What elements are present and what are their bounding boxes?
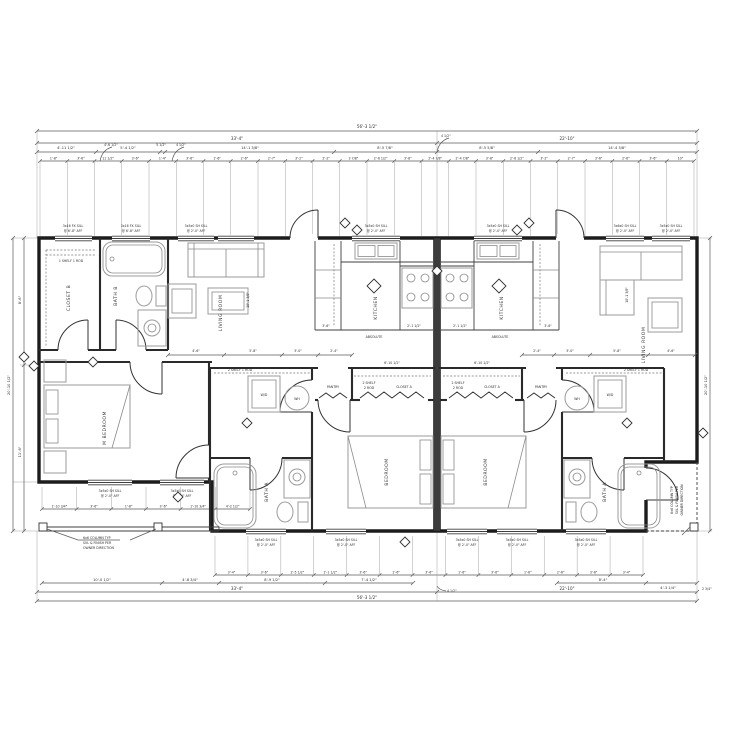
window [112,235,150,241]
room-label-closet-a-left: CLOSET A [396,385,412,389]
dim-left-a: 8'-6" [18,295,22,304]
dim-mid: 8'-9 1/2" [264,578,280,582]
dim-top-left: 33'-4" [231,136,243,141]
front-door-opening-right [556,234,584,242]
nightstand [44,360,66,382]
sink [144,320,160,336]
dim-living-left: 10'-1 3/8" [246,292,250,308]
tub-drain [233,471,237,475]
dim-label: 3'-6" [649,156,657,160]
room-label-kitchen-left: KITCHEN [373,296,379,319]
dim-label: 4'-2 1/2" [226,504,240,508]
dim-bottom-overall: 56'-3 1/2" [357,595,377,600]
dim-label: 1'-6" [392,570,400,574]
window [474,235,522,241]
sill-label: 3x6x0 SH SILL [614,224,637,228]
bedroom-left: BEDROOM [348,436,433,508]
dim-label: 3'-2" [295,156,303,160]
dim-label: 2'-2" [322,156,330,160]
room-label-bath-a-left: BATH A [264,482,270,502]
toilet-bowl [136,286,152,306]
dim-hall: 4'-6" [667,349,675,353]
dim-label: 3'-6" [186,156,194,160]
dim-label: 3'-2" [540,156,548,160]
sill-label: 3x5x0 SH SILL [185,224,208,228]
nightstand [44,451,66,473]
sill-label: @ 6'-8" AFF [64,229,83,233]
room-label-bedroom-left: BEDROOM [384,458,390,485]
dim-mid: 7'-4 1/2" [361,578,377,582]
closet-note: 2 SHELF [362,381,375,385]
dim-label: 3'-6" [425,570,433,574]
sill-label: @ 2'-0" AFF [337,543,356,547]
bifold-closet-a-left [360,392,424,398]
window [218,235,254,241]
dim-label: 2'-4 7/8" [456,156,470,160]
toilet-bowl [277,502,293,522]
dim-kitchen: 2'-1 1/2" [407,324,421,328]
dim-kitchen: 2'-1 1/2" [453,324,467,328]
dim-label: 1'-1 1/2" [323,570,337,574]
room-label-master-bedroom: M BEDROOM [102,411,108,445]
bed [44,385,130,448]
pillow [420,440,431,470]
dim-seg: 14'-1 3/8" [241,146,259,150]
room-label-pantry-left: PANTRY [327,385,339,389]
porch-column [690,523,698,531]
column-note: SVL & FINISH PER [83,541,112,545]
dim-hall: 2'-4" [330,349,338,353]
dim-label: 3'-6" [90,504,98,508]
vanity [564,460,590,498]
sill-label: @ 6'-8" AFF [122,229,141,233]
coffee-table [648,298,682,332]
kitchen-right: KITCHEN 2'-1 1/2" 3'-6" ABSOLUTE [441,241,559,339]
master-bedroom-door [130,362,162,394]
dim-label: 3'-6" [491,570,499,574]
sill-label: @ 2'-0" AFF [101,494,120,498]
water-heater-label: WH [294,397,300,401]
dim-hall: 5'-8" [249,349,257,353]
bifold-closet-a-right [449,392,513,398]
window [246,528,286,534]
window [606,235,644,241]
dim-label: 3'-6" [77,156,85,160]
sill-label: @ 2'-0" AFF [616,229,635,233]
bath-b: BATH B [103,242,166,346]
pillow [46,390,58,414]
sill-label: 3x5x0 SH SILL [255,538,278,542]
room-label-bath-a-right: BATH A [602,482,608,502]
floor-plan-sheet: 56'-3 1/2" 33'-4" 22'-10" 4'-11 1/2" 5'-… [0,0,733,733]
dim-bottom-left: 33'-4" [231,586,243,591]
bifold-pantry-right [527,393,555,398]
room-label-living-right: LIVING ROOM [641,327,647,364]
dim-hall: 2'-4" [533,349,541,353]
room-label-kitchen-right: KITCHEN [499,296,505,319]
floor-plan-drawing: 56'-3 1/2" 33'-4" 22'-10" 4'-11 1/2" 5'-… [0,0,733,733]
closet-note: 1 SHELF 1 ROD [59,259,84,263]
dim-kitchen: 3'-6" [322,324,330,328]
sill-label: 3x5x0 SH SILL [660,224,683,228]
kitchen-note: ABSOLUTE [366,335,383,339]
dim-label: 1'-10 3/4" [51,504,67,508]
door-tag-diamond [340,218,350,228]
dim-hall: 3'-0" [566,349,574,353]
porch-left: 6x6 COLUMN TYP SVL & FINISH PER OWNER DI… [39,523,219,550]
porch-column [39,523,47,531]
room-label-closet-b: CLOSET B [66,285,72,311]
washer-dryer-label: W/D [261,393,268,397]
dim-left-total: 20'-10 1/2" [7,375,11,395]
dim-seg: 4'-11 1/2" [57,146,75,150]
window-tag-diamond [400,537,410,547]
toilet-bowl [581,502,597,522]
dim-top-overall: 56'-3 1/2" [357,124,377,129]
range [402,268,433,308]
dim-label: 2'-6 1/2" [510,156,524,160]
dim-label: 3'-6" [261,570,269,574]
master-bedroom: M BEDROOM [44,360,130,473]
room-label-living-left: LIVING ROOM [218,295,224,332]
closet-note: 2 SHELF [451,381,464,385]
bedroom-left-door [318,400,350,432]
sill-label: 3x5x0 SH SILL [335,538,358,542]
porch-column [154,523,162,531]
window [566,528,606,534]
column-note: 6x6 COLUMN TYP [83,536,111,540]
hall-door [176,445,209,478]
dim-seg: 5 1/2" [156,143,166,147]
sill-label: @ 2'-0" AFF [367,229,386,233]
vanity [284,460,310,498]
dim-label: 1'-6" [213,156,221,160]
sill-label: 3x16 FX SILL [121,224,142,228]
closet-a-right: 2 SHELF 2 ROD CLOSET A 6'-10 1/2" [443,361,520,390]
closet-note: 2 SHELF 1 ROD [228,368,253,372]
sill-label: @ 2'-0" AFF [257,543,276,547]
dim-label: 3'-6" [132,156,140,160]
door-tag-diamond [512,225,522,235]
window [652,235,690,241]
window [352,235,400,241]
water-heater-label: WH [574,397,580,401]
bath-a-right-door [592,458,624,490]
dim-label: 2'-6" [557,570,565,574]
party-wall [434,238,441,531]
sill-label: 3x5x0 SH SILL [99,489,122,493]
porch-right: 6x6 COLUMN TYP SVL & FINISH PER OWNER DI… [646,462,698,535]
sill-label: 3x5x0 SH SILL [456,538,479,542]
dim-mid: 8'-4" [599,578,608,582]
tub-drain [110,257,114,261]
sill-label: 3x5x0 SH SILL [575,538,598,542]
closet-note: 2 ROD [453,386,464,390]
toilet-tank [298,502,308,522]
dim-callout-bottom: 4 1/2" [447,589,457,593]
closet-note: 2 SHELF 1 ROD [624,368,649,372]
sink [289,469,305,485]
dim-label: 2'-5 1/2" [290,570,304,574]
dim-bottom-right: 22'-10" [560,586,575,591]
dim-row-bottom-left: 1'-10 3/4"3'-6"1'-8"3'-6"1'-10 3/4"4'-2 … [40,487,252,511]
toilet-tank [156,286,166,306]
dim-callout: 4'-6 1/2" [104,143,118,147]
room-label-pantry-right: PANTRY [535,385,547,389]
door-tag-diamond [242,418,252,428]
interior-walls [39,238,664,531]
sill-label: 3x5x0 SH SILL [487,224,510,228]
closet-a-left: 2 SHELF 2 ROD CLOSET A 6'-10 1/2" [354,361,431,390]
living-room-left: LIVING ROOM 10'-1 3/8" [168,243,264,331]
sill-label: @ 2'-0" AFF [458,543,477,547]
column-note: SVL & FINISH PER [675,485,679,514]
dim-hall: 4'-6" [192,349,200,353]
front-door-opening-left [290,234,318,242]
utility-right: 2 SHELF 1 ROD W/D WH [565,368,662,412]
vanity [138,310,166,346]
dim-mid: 10'-0 1/2" [93,578,111,582]
window [447,528,487,534]
dim-label: 3'-8" [404,156,412,160]
dim-label: 3 7/8" [349,156,359,160]
dim-label: 1'-10 3/4" [190,504,206,508]
dim-label: 3'-6" [359,570,367,574]
sill-label: @ 2'-0" AFF [508,543,527,547]
dim-seg: 8'-5 5/8" [479,146,495,150]
closet-note: 2 ROD [364,386,375,390]
toilet-tank [566,502,576,522]
bedroom-right: BEDROOM [441,436,526,508]
sill-label: 3x5x0 SH SILL [506,538,529,542]
dim-label: 10" [678,156,684,160]
dim-living-right: 10'-1 3/8" [625,287,629,303]
sill-label: 3x5x0 SH SILL [365,224,388,228]
entry-door-opening-right [642,468,650,500]
bifold-pantry-left [319,393,347,398]
door-tag-diamond [622,418,632,428]
washer-dryer-label: W/D [607,393,614,397]
right-dimension-tiers: 20'-10 1/2" [646,236,712,533]
sink [569,469,585,485]
dim-label: 3'-6" [595,156,603,160]
kitchen-tag-diamond [367,279,381,293]
closet-b-door [58,320,88,350]
room-label-bath-b: BATH B [113,286,119,306]
dim-label: 1'-4" [159,156,167,160]
sill-label: @ 2'-0" AFF [187,229,206,233]
dim-label: 2'-6 1/2" [374,156,388,160]
dim-closet-left: 6'-10 1/2" [384,361,400,365]
door-tag-diamond [524,218,534,228]
sill-label: @ 2'-0" AFF [489,229,508,233]
bath-a-left: BATH A [214,460,310,528]
column-note: 6x6 COLUMN TYP [670,486,674,514]
dim-mid: 4'-3 1/4" [660,586,676,590]
dim-label: 3'-4" [228,570,236,574]
dim-label: 1'-8" [125,504,133,508]
bedroom-right-door [524,400,556,432]
window-tag-diamond [698,428,708,438]
window [326,528,366,534]
dim-label: 2'-6" [622,156,630,160]
front-door-left [290,210,318,238]
dim-label: 11 1/2" [102,156,114,160]
range [441,268,472,308]
dim-left-b: 11'-6" [18,446,22,457]
living-room-right: LIVING ROOM 10'-1 3/8" [600,246,682,363]
pantry-left: PANTRY [327,385,339,389]
sill-label: 3x5x0 SH SILL [171,489,194,493]
pillow [443,440,454,470]
dim-label: 1'-6" [458,570,466,574]
dim-label: 2'-7" [268,156,276,160]
dim-label: 3'-8" [486,156,494,160]
column-note: OWNER DIRECTION [83,546,115,550]
dim-seg: 14'-4 3/8" [608,146,626,150]
dim-label: 2'-7" [568,156,576,160]
dim-label: 3'-6" [160,504,168,508]
window [55,235,92,241]
dim-callout: 4 1/2" [441,134,451,138]
pillow [46,419,58,443]
dim-label: 3'-4" [623,570,631,574]
kitchen-note: ABSOLUTE [492,335,509,339]
dim-corner: 2 3/4" [702,587,712,591]
kitchen-tag-diamond [492,279,506,293]
window [160,479,204,485]
utility-left: 2 SHELF 1 ROD W/D WH [214,368,310,412]
dim-label: 1'-6" [524,570,532,574]
dim-label: 3'-6" [590,570,598,574]
sill-label: @ 2'-0" AFF [662,229,681,233]
window [178,235,214,241]
dim-callout: 4 1/2" [176,143,186,147]
room-label-closet-a-right: CLOSET A [484,385,500,389]
pillow [443,474,454,504]
dim-kitchen: 3'-6" [544,324,552,328]
dim-closet-right: 6'-10 1/2" [474,361,490,365]
hall-dims: 4'-6" 5'-8" 3'-0" 2'-4" 2'-4" 3'-0" 5'-8… [166,349,697,357]
dim-seg: 8'-5 7/8" [377,146,393,150]
pantry-right: PANTRY [535,385,547,389]
dim-mid: 4'-8 3/4" [182,578,198,582]
front-door-right [556,210,584,238]
top-dimension-tiers: 56'-3 1/2" 33'-4" 22'-10" 4'-11 1/2" 5'-… [35,124,699,236]
sill-label: 3x16 FX SILL [63,224,84,228]
dim-hall: 3'-0" [294,349,302,353]
window [497,528,537,534]
tub-drain [637,471,641,475]
sill-label: @ 2'-0" AFF [577,543,596,547]
door-tag-diamond [88,357,98,367]
dim-label: 1'-8" [50,156,58,160]
dim-seg: 5'-4 1/2" [120,146,136,150]
dim-label: 2'-6" [241,156,249,160]
dim-label: 2'-4 7/8" [428,156,442,160]
dim-right-total: 20'-10 1/2" [704,375,708,395]
window-tag-diamond [19,352,29,362]
room-label-bedroom-right: BEDROOM [483,458,489,485]
dim-hall: 5'-8" [613,349,621,353]
door-tag-diamond [352,225,362,235]
dim-top-right: 22'-10" [560,136,575,141]
column-note: OWNER DIRECTION [680,484,684,516]
kitchen-left: KITCHEN 3'-6" 2'-1 1/2" ABSOLUTE [315,241,433,339]
window [88,479,132,485]
pillow [420,474,431,504]
